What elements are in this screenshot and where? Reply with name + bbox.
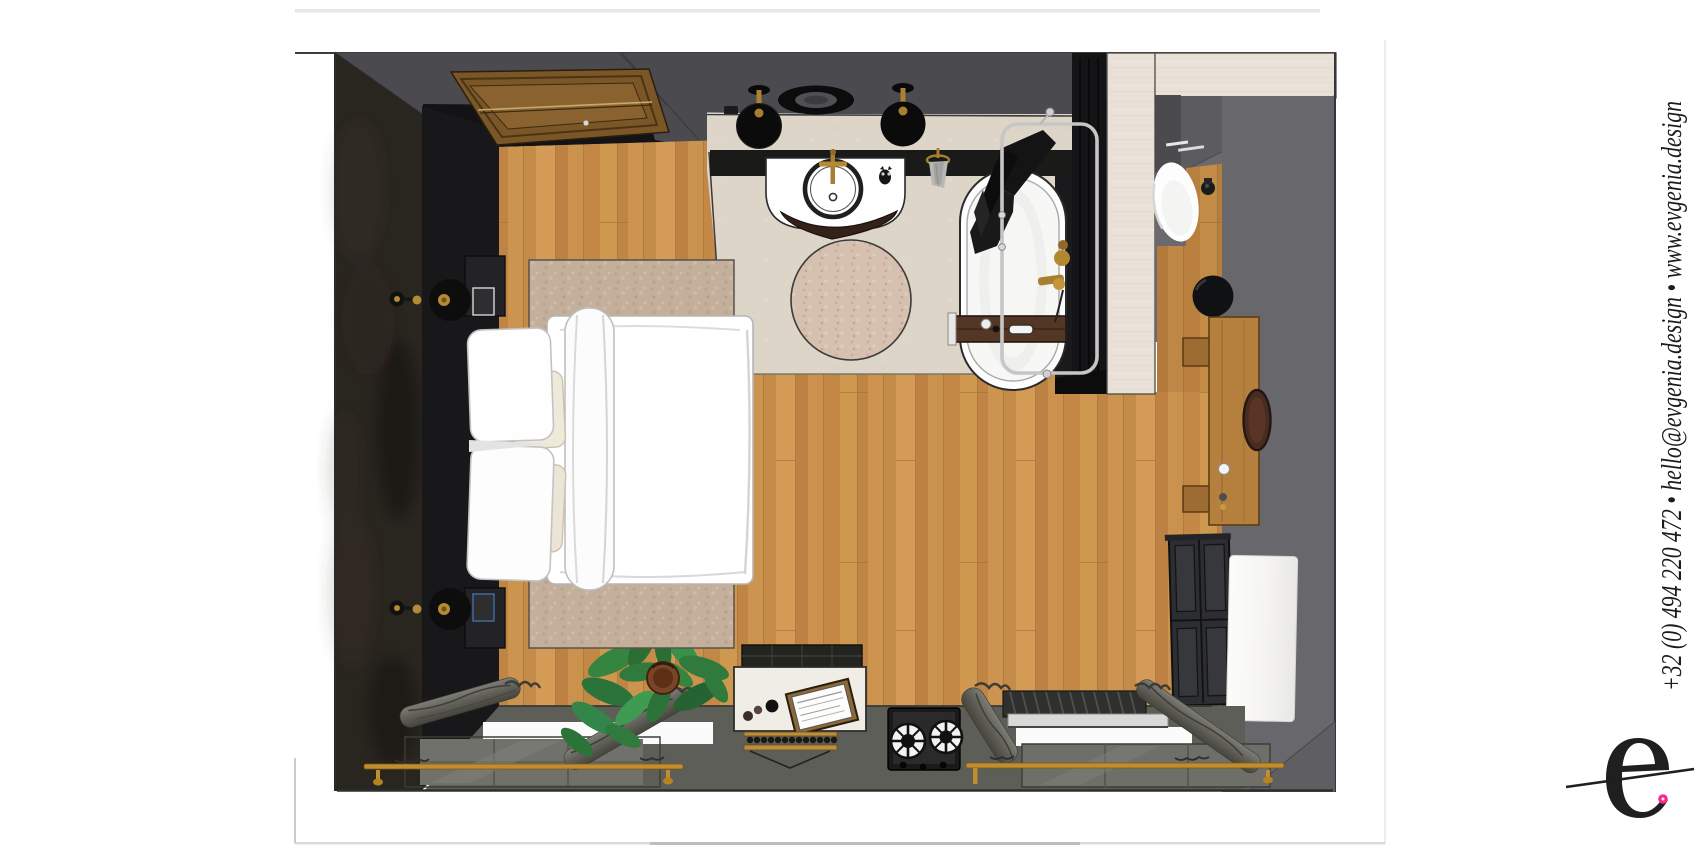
svg-text:+32 (0) 494 220 472 • hello@ev: +32 (0) 494 220 472 • hello@evgenia.desi… [1657,101,1688,691]
